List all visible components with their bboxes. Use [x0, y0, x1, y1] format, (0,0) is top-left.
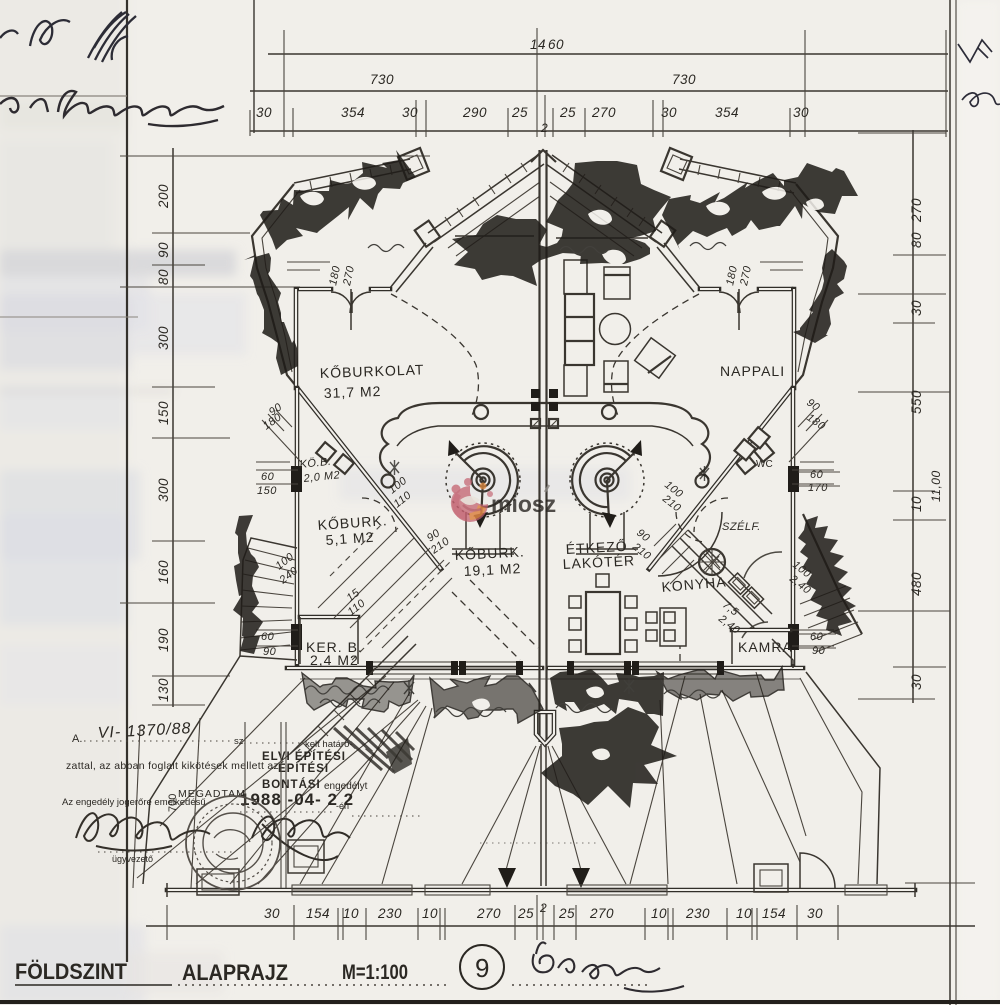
svg-text:30: 30 — [264, 906, 280, 921]
svg-text:19,1 M2: 19,1 M2 — [463, 560, 521, 579]
svg-text:230: 230 — [685, 906, 710, 921]
svg-text:10: 10 — [651, 906, 667, 921]
svg-text:30: 30 — [807, 906, 823, 921]
svg-text:354: 354 — [341, 105, 365, 120]
svg-text:zattal, az abban foglalt kiköt: zattal, az abban foglalt kikötések melle… — [66, 760, 279, 772]
svg-text:sz.: sz. — [234, 736, 246, 747]
svg-text:30: 30 — [793, 105, 809, 120]
svg-text:kelt határo-: kelt határo- — [305, 739, 353, 750]
svg-text:ügyvezető: ügyvezető — [112, 854, 153, 864]
svg-text:NAPPALI: NAPPALI — [720, 363, 785, 379]
svg-text:A.: A. — [72, 733, 82, 745]
svg-text:170: 170 — [808, 482, 828, 494]
svg-text:30: 30 — [402, 105, 418, 120]
svg-text:9: 9 — [475, 953, 489, 983]
svg-text:30: 30 — [909, 674, 924, 690]
svg-text:WC: WC — [756, 459, 773, 470]
svg-text:FÖLDSZINT: FÖLDSZINT — [15, 959, 128, 984]
svg-text:30: 30 — [256, 105, 272, 120]
svg-text:60: 60 — [261, 471, 275, 483]
svg-text:KAMRA: KAMRA — [738, 639, 793, 655]
svg-text:160: 160 — [156, 560, 171, 584]
svg-text:11,00: 11,00 — [929, 470, 943, 502]
svg-text:10: 10 — [736, 906, 752, 921]
svg-text:80: 80 — [909, 232, 924, 248]
svg-text:60: 60 — [261, 631, 275, 643]
svg-text:60: 60 — [810, 469, 824, 481]
svg-text:80: 80 — [156, 269, 171, 285]
svg-text:150: 150 — [257, 485, 277, 497]
svg-text:300: 300 — [156, 478, 171, 502]
svg-text:90: 90 — [263, 646, 277, 658]
svg-text:90: 90 — [812, 645, 826, 657]
svg-text:10: 10 — [343, 906, 359, 921]
svg-text:200: 200 — [156, 184, 171, 209]
svg-text:550: 550 — [909, 390, 924, 414]
svg-text:154: 154 — [306, 906, 330, 921]
svg-text:-én: -én — [336, 801, 349, 811]
svg-text:5,1 M2: 5,1 M2 — [325, 529, 375, 548]
svg-text:2: 2 — [539, 901, 547, 915]
svg-text:290: 290 — [462, 105, 487, 120]
svg-text:M=1:100: M=1:100 — [342, 961, 408, 984]
svg-text:150: 150 — [156, 401, 171, 425]
svg-text:90: 90 — [156, 242, 171, 258]
svg-text:480: 480 — [909, 572, 924, 596]
svg-text:25: 25 — [511, 105, 528, 120]
svg-text:60: 60 — [810, 631, 824, 643]
svg-text:ELVI ÉPÍTÉSI: ELVI ÉPÍTÉSI — [262, 750, 346, 763]
svg-text:10: 10 — [422, 906, 438, 921]
svg-text:354: 354 — [715, 105, 739, 120]
svg-text:10: 10 — [909, 496, 924, 512]
svg-text:SZÉLF.: SZÉLF. — [722, 520, 761, 533]
svg-text:130: 130 — [156, 678, 171, 702]
svg-text:700: 700 — [167, 794, 179, 812]
svg-text:154: 154 — [762, 906, 786, 921]
svg-text:2: 2 — [540, 121, 548, 135]
svg-text:2,4 M2: 2,4 M2 — [310, 652, 359, 668]
svg-text:25: 25 — [517, 906, 534, 921]
svg-text:30: 30 — [661, 105, 677, 120]
svg-text:730: 730 — [672, 72, 696, 87]
svg-text:31,7 M2: 31,7 M2 — [324, 383, 382, 401]
svg-text:190: 190 — [156, 628, 171, 652]
svg-text:MEGADTAM: MEGADTAM — [178, 788, 246, 800]
svg-text:270: 270 — [476, 906, 501, 921]
svg-text:miosz: miosz — [491, 491, 556, 517]
svg-text:ALAPRAJZ: ALAPRAJZ — [182, 960, 288, 985]
svg-text:730: 730 — [370, 72, 394, 87]
svg-text:230: 230 — [377, 906, 402, 921]
svg-text:25: 25 — [558, 906, 575, 921]
svg-text:25: 25 — [559, 105, 576, 120]
svg-text:270: 270 — [909, 198, 924, 223]
svg-text:300: 300 — [156, 326, 171, 350]
svg-text:30: 30 — [909, 300, 924, 316]
svg-text:270: 270 — [591, 105, 616, 120]
svg-text:270: 270 — [589, 906, 614, 921]
